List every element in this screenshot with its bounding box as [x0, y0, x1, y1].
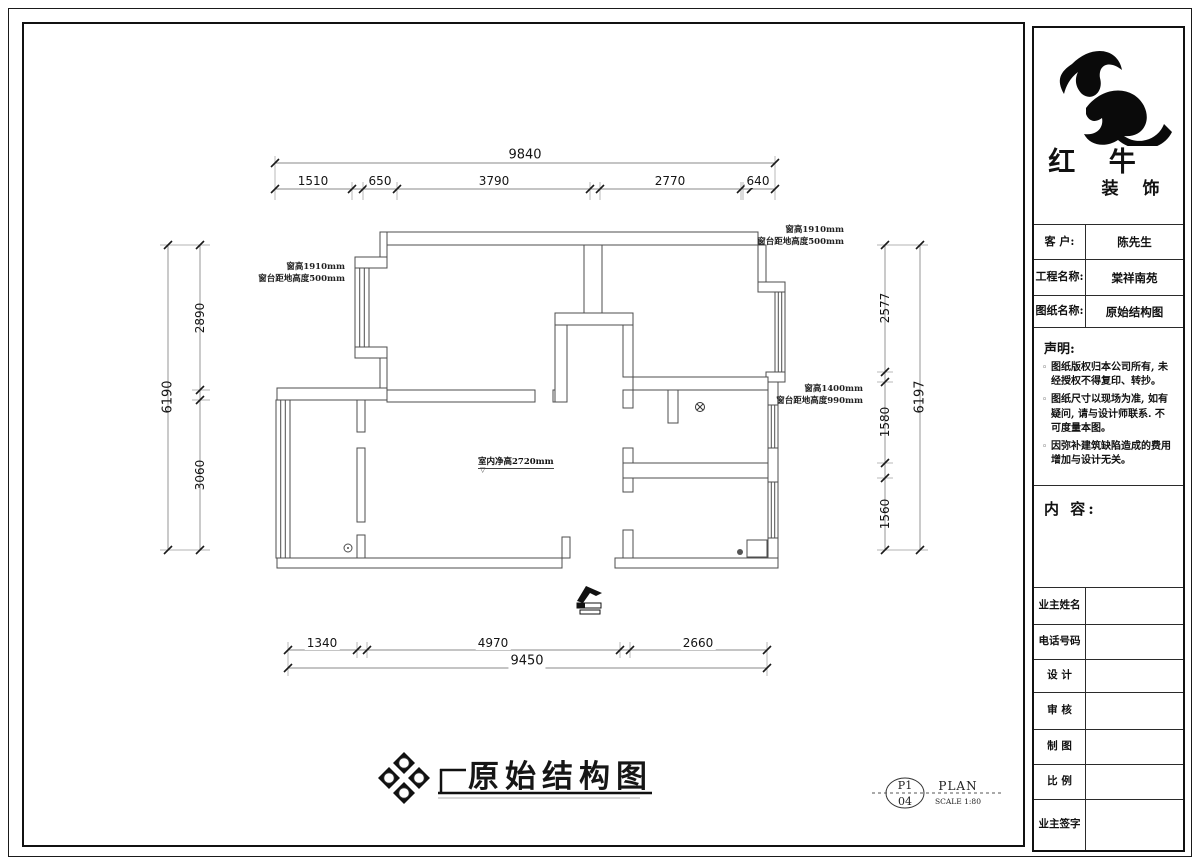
info-label: 客 户: — [1034, 225, 1085, 259]
sign-value — [1085, 800, 1183, 850]
info-label: 工程名称: — [1034, 260, 1085, 295]
dim-bottom-seg-2: 4970 — [476, 636, 511, 650]
window-note-top-right: 窗高1910mm 窗台距地高度500mm — [744, 224, 844, 249]
plan-title: 原始结构图 — [468, 751, 653, 796]
drawing-sheet: 9840 1510 650 3790 2770 640 6190 2890 30… — [0, 0, 1200, 865]
dim-right-seg-3: 1560 — [878, 499, 892, 530]
info-value: 棠祥南苑 — [1085, 260, 1183, 295]
info-row-client: 客 户: 陈先生 — [1034, 224, 1183, 259]
dim-bottom-seg-3: 2660 — [681, 636, 716, 650]
sign-label: 审 核 — [1034, 693, 1085, 729]
content-label: 内 容: — [1044, 498, 1183, 519]
sign-row-scale: 比 例 — [1034, 764, 1183, 799]
info-row-sheet-name: 图纸名称: 原始结构图 — [1034, 295, 1183, 327]
windows — [276, 268, 785, 558]
fixture-symbols — [344, 403, 743, 556]
sign-label: 比 例 — [1034, 765, 1085, 799]
dim-top-seg-3: 3790 — [477, 174, 512, 188]
dim-right-total: 6197 — [913, 380, 928, 413]
sign-value — [1085, 660, 1183, 692]
dim-top-seg-4: 2770 — [653, 174, 688, 188]
dim-top-seg-2: 650 — [367, 174, 394, 188]
dim-bottom-total: 9450 — [508, 654, 545, 669]
dim-left-seg-2: 3060 — [193, 460, 207, 491]
sheet-scale: SCALE 1:80 — [928, 797, 988, 806]
statement-title: 声明: — [1044, 338, 1183, 357]
title-block: 红 牛 装 饰 客 户: 陈先生 工程名称: 棠祥南苑 图纸名称: 原始结构图 … — [1032, 26, 1185, 852]
sign-value — [1085, 625, 1183, 659]
window-note-left: 窗高1910mm 窗台距地高度500mm — [245, 261, 345, 286]
walls — [277, 232, 785, 568]
dim-bottom-seg-1: 1340 — [305, 636, 340, 650]
brand-section: 红 牛 装 饰 — [1034, 28, 1183, 224]
floorplan-linework — [0, 0, 1200, 865]
dim-left-seg-1: 2890 — [193, 303, 207, 334]
sign-row-phone: 电话号码 — [1034, 624, 1183, 659]
window-note-mid-right: 窗高1400mm 窗台距地高度990mm — [763, 383, 863, 408]
ceiling-height-note: 室内净高2720mm — [478, 455, 554, 469]
dim-top-seg-5: 640 — [745, 174, 772, 188]
sign-value — [1085, 730, 1183, 764]
statement-item: 图纸版权归本公司所有, 未经授权不得复印、转抄。 — [1042, 361, 1174, 389]
info-value: 陈先生 — [1085, 225, 1183, 259]
entry-door-icon — [577, 586, 602, 614]
statement-item: 图纸尺寸以现场为准, 如有疑问, 请与设计师联系. 不可度量本图。 — [1042, 393, 1174, 436]
brand-subname: 装 饰 — [1092, 174, 1178, 199]
info-label: 图纸名称: — [1034, 296, 1085, 327]
info-value: 原始结构图 — [1085, 296, 1183, 327]
sign-row-owner-signature: 业主签字 — [1034, 799, 1183, 850]
sign-value — [1085, 693, 1183, 729]
sheet-code: P1 — [893, 779, 917, 792]
level-marker-icon: ▽ — [480, 466, 485, 474]
sign-label: 设 计 — [1034, 660, 1085, 692]
sheet-number: 04 — [893, 795, 917, 808]
compass-icon — [378, 752, 430, 804]
content-section: 内 容: — [1034, 485, 1183, 587]
sign-row-draft: 制 图 — [1034, 729, 1183, 764]
sign-label: 业主签字 — [1034, 800, 1085, 850]
sheet-type: PLAN — [930, 779, 986, 793]
dim-right-seg-2: 1580 — [878, 407, 892, 438]
brand-logo-icon — [1034, 36, 1183, 146]
statement-item: 因弥补建筑缺陷造成的费用增加与设计无关。 — [1042, 440, 1174, 468]
statement-section: 声明: 图纸版权归本公司所有, 未经授权不得复印、转抄。 图纸尺寸以现场为准, … — [1034, 327, 1183, 485]
dim-top-seg-1: 1510 — [296, 174, 331, 188]
dim-right-seg-1: 2577 — [878, 293, 892, 324]
sign-row-design: 设 计 — [1034, 659, 1183, 692]
sign-label: 制 图 — [1034, 730, 1085, 764]
dim-left-total: 6190 — [161, 380, 176, 413]
info-row-project: 工程名称: 棠祥南苑 — [1034, 259, 1183, 295]
sign-row-review: 审 核 — [1034, 692, 1183, 729]
sign-row-owner-name: 业主姓名 — [1034, 587, 1183, 624]
sign-value — [1085, 765, 1183, 799]
sign-label: 电话号码 — [1034, 625, 1085, 659]
sign-label: 业主姓名 — [1034, 588, 1085, 624]
sign-value — [1085, 588, 1183, 624]
dim-top-total: 9840 — [506, 148, 543, 163]
